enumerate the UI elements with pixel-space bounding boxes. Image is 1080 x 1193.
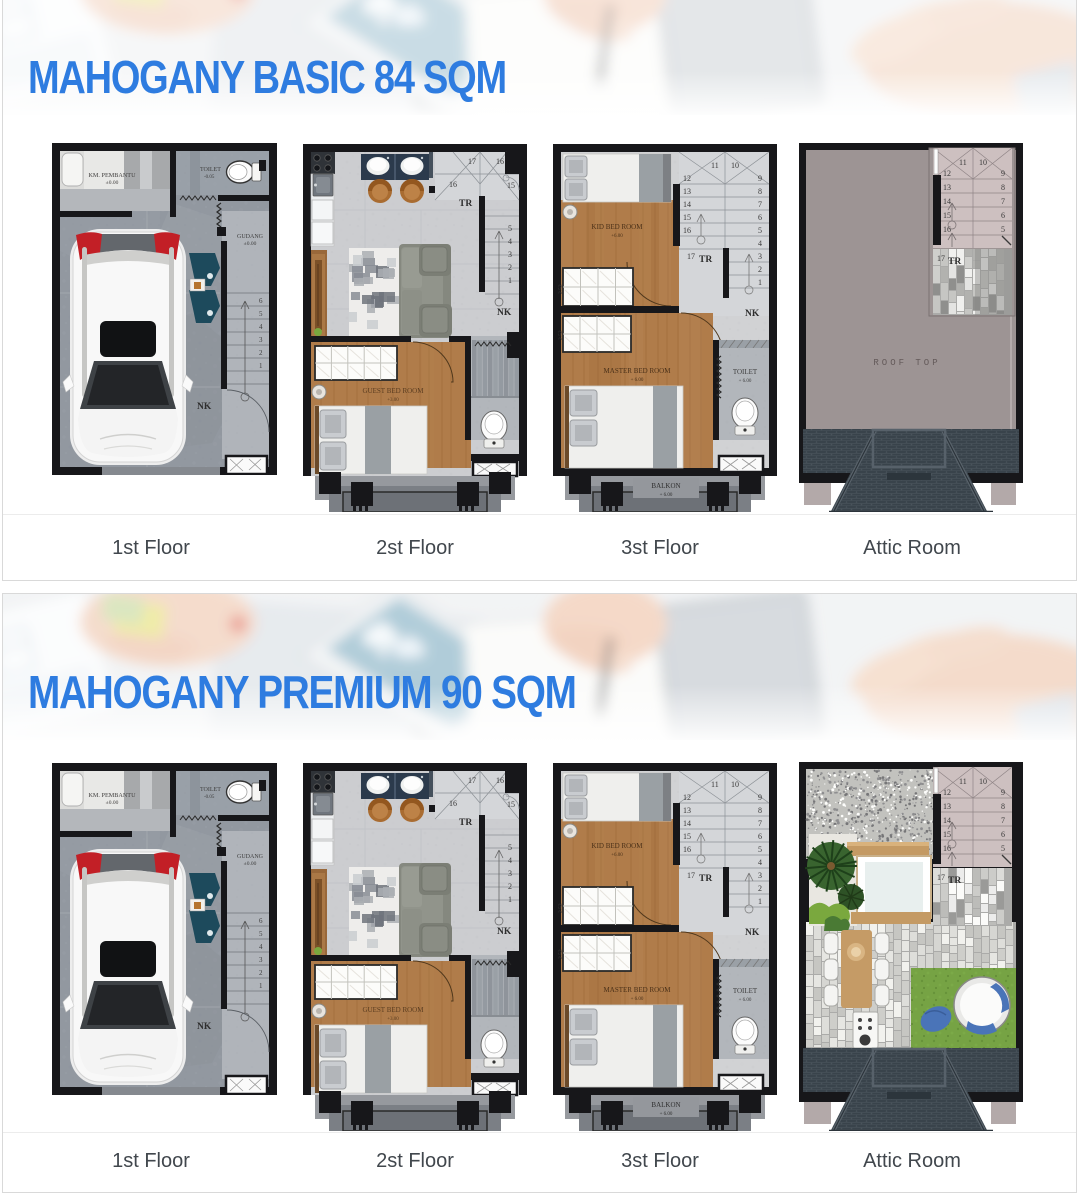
svg-text:ROOF TOP: ROOF TOP [873, 358, 940, 368]
svg-text:16: 16 [683, 226, 691, 235]
svg-text:±0.00: ±0.00 [106, 180, 119, 186]
svg-text:16: 16 [683, 845, 691, 854]
svg-text:2: 2 [758, 884, 762, 893]
svg-text:4: 4 [508, 856, 512, 865]
svg-text:TR: TR [948, 876, 961, 886]
svg-text:TR: TR [459, 199, 472, 209]
svg-text:12: 12 [943, 169, 951, 178]
svg-text:10: 10 [731, 161, 739, 170]
svg-text:+ 6.00: + 6.00 [660, 493, 673, 498]
svg-text:16: 16 [496, 776, 504, 785]
svg-text:7: 7 [758, 200, 762, 209]
svg-text:+3.00: +3.00 [387, 1017, 399, 1022]
svg-text:+3.00: +3.00 [387, 398, 399, 403]
svg-text:+ 6.00: + 6.00 [739, 998, 752, 1003]
svg-text:17: 17 [687, 252, 695, 261]
svg-text:3: 3 [758, 252, 762, 261]
svg-text:+ 6.00: + 6.00 [739, 379, 752, 384]
svg-text:14: 14 [683, 200, 691, 209]
svg-text:10: 10 [979, 777, 987, 786]
svg-text:6: 6 [1001, 830, 1005, 839]
svg-text:4: 4 [508, 237, 512, 246]
svg-text:17: 17 [937, 254, 945, 263]
svg-text:16: 16 [449, 799, 457, 808]
svg-text:4: 4 [758, 858, 762, 867]
svg-text:1: 1 [758, 897, 762, 906]
svg-text:17: 17 [687, 871, 695, 880]
svg-text:3: 3 [259, 336, 263, 344]
svg-text:1: 1 [508, 895, 512, 904]
svg-text:-0.05: -0.05 [204, 175, 215, 180]
svg-text:11: 11 [959, 158, 967, 167]
svg-text:15: 15 [683, 832, 691, 841]
svg-text:16: 16 [449, 180, 457, 189]
svg-text:±0.00: ±0.00 [106, 800, 119, 806]
svg-text:6: 6 [259, 297, 263, 305]
svg-text:15: 15 [683, 213, 691, 222]
svg-text:KID BED ROOM: KID BED ROOM [592, 842, 644, 850]
svg-text:TOILET: TOILET [200, 787, 221, 793]
svg-text:+ 6.00: + 6.00 [631, 378, 644, 383]
svg-text:NK: NK [197, 1022, 212, 1032]
svg-text:9: 9 [758, 174, 762, 183]
svg-text:14: 14 [683, 819, 691, 828]
svg-text:4: 4 [758, 239, 762, 248]
svg-text:16: 16 [496, 157, 504, 166]
svg-text:7: 7 [758, 819, 762, 828]
svg-text:11: 11 [959, 777, 967, 786]
svg-text:15: 15 [507, 181, 515, 190]
svg-text:KID BED ROOM: KID BED ROOM [592, 223, 644, 231]
svg-text:GUEST BED ROOM: GUEST BED ROOM [363, 387, 425, 395]
svg-text:15: 15 [507, 800, 515, 809]
svg-text:3: 3 [259, 956, 263, 964]
svg-text:NK: NK [745, 928, 760, 938]
svg-text:3: 3 [758, 871, 762, 880]
svg-text:14: 14 [943, 816, 951, 825]
svg-text:2: 2 [508, 882, 512, 891]
svg-text:2.52: 2.52 [558, 903, 564, 913]
svg-text:5: 5 [508, 843, 512, 852]
svg-text:11: 11 [711, 780, 719, 789]
svg-text:GUDANG: GUDANG [237, 854, 264, 860]
svg-text:5: 5 [758, 845, 762, 854]
svg-text:GUEST BED ROOM: GUEST BED ROOM [363, 1006, 425, 1014]
svg-text:-0.05: -0.05 [204, 795, 215, 800]
svg-text:±0.00: ±0.00 [244, 861, 257, 867]
svg-text:9: 9 [1001, 788, 1005, 797]
svg-text:2.52: 2.52 [558, 284, 564, 294]
svg-text:12: 12 [683, 793, 691, 802]
svg-text:10: 10 [731, 780, 739, 789]
svg-text:TR: TR [459, 818, 472, 828]
svg-text:TOILET: TOILET [733, 987, 758, 995]
svg-text:8: 8 [1001, 802, 1005, 811]
svg-text:TOILET: TOILET [200, 167, 221, 173]
svg-text:13: 13 [943, 183, 951, 192]
svg-text:1: 1 [259, 982, 263, 990]
svg-text:4: 4 [259, 943, 263, 951]
svg-text:11: 11 [711, 161, 719, 170]
svg-text:10: 10 [979, 158, 987, 167]
svg-text:6: 6 [758, 213, 762, 222]
svg-text:12: 12 [943, 788, 951, 797]
svg-text:3: 3 [508, 250, 512, 259]
svg-text:NK: NK [497, 927, 512, 937]
svg-text:6: 6 [1001, 211, 1005, 220]
svg-text:15: 15 [943, 830, 951, 839]
svg-text:5: 5 [758, 226, 762, 235]
svg-text:13: 13 [683, 187, 691, 196]
svg-text:8: 8 [758, 806, 762, 815]
svg-text:MASTER BED ROOM: MASTER BED ROOM [604, 367, 672, 375]
svg-text:2.52: 2.52 [558, 330, 564, 340]
svg-text:TOILET: TOILET [733, 368, 758, 376]
svg-text:KM. PEMBANTU: KM. PEMBANTU [88, 792, 136, 799]
svg-text:1: 1 [508, 276, 512, 285]
svg-text:17: 17 [937, 873, 945, 882]
svg-text:BALKON: BALKON [651, 482, 680, 490]
svg-text:6: 6 [758, 832, 762, 841]
svg-text:±0.00: ±0.00 [244, 241, 257, 247]
svg-text:+6.00: +6.00 [611, 853, 623, 858]
svg-text:NK: NK [497, 308, 512, 318]
svg-text:+6.00: +6.00 [611, 234, 623, 239]
svg-text:9: 9 [758, 793, 762, 802]
svg-text:14: 14 [943, 197, 951, 206]
svg-text:+ 6.00: + 6.00 [631, 997, 644, 1002]
svg-text:TR: TR [948, 257, 961, 267]
svg-text:5: 5 [1001, 844, 1005, 853]
svg-text:2: 2 [259, 349, 263, 357]
svg-text:6: 6 [259, 917, 263, 925]
svg-text:17: 17 [468, 776, 476, 785]
svg-text:TR: TR [699, 874, 712, 884]
svg-text:3: 3 [508, 869, 512, 878]
svg-text:4: 4 [259, 323, 263, 331]
svg-text:2: 2 [259, 969, 263, 977]
svg-text:7: 7 [1001, 816, 1005, 825]
svg-text:2: 2 [758, 265, 762, 274]
svg-text:TR: TR [699, 255, 712, 265]
svg-text:5: 5 [259, 310, 263, 318]
svg-text:16: 16 [943, 225, 951, 234]
svg-text:15: 15 [943, 211, 951, 220]
svg-text:KM. PEMBANTU: KM. PEMBANTU [88, 172, 136, 179]
svg-text:7: 7 [1001, 197, 1005, 206]
svg-text:13: 13 [943, 802, 951, 811]
svg-text:+ 6.00: + 6.00 [660, 1112, 673, 1117]
svg-text:NK: NK [197, 402, 212, 412]
svg-text:1: 1 [758, 278, 762, 287]
svg-text:1: 1 [259, 362, 263, 370]
svg-text:17: 17 [468, 157, 476, 166]
svg-text:12: 12 [683, 174, 691, 183]
svg-text:13: 13 [683, 806, 691, 815]
svg-text:8: 8 [1001, 183, 1005, 192]
svg-text:9: 9 [1001, 169, 1005, 178]
svg-text:NK: NK [745, 309, 760, 319]
svg-text:5: 5 [508, 224, 512, 233]
svg-text:2.52: 2.52 [558, 949, 564, 959]
svg-text:8: 8 [758, 187, 762, 196]
svg-text:5: 5 [1001, 225, 1005, 234]
svg-text:BALKON: BALKON [651, 1101, 680, 1109]
svg-text:GUDANG: GUDANG [237, 234, 264, 240]
svg-text:2: 2 [508, 263, 512, 272]
svg-text:16: 16 [943, 844, 951, 853]
svg-text:MASTER BED ROOM: MASTER BED ROOM [604, 986, 672, 994]
svg-text:5: 5 [259, 930, 263, 938]
